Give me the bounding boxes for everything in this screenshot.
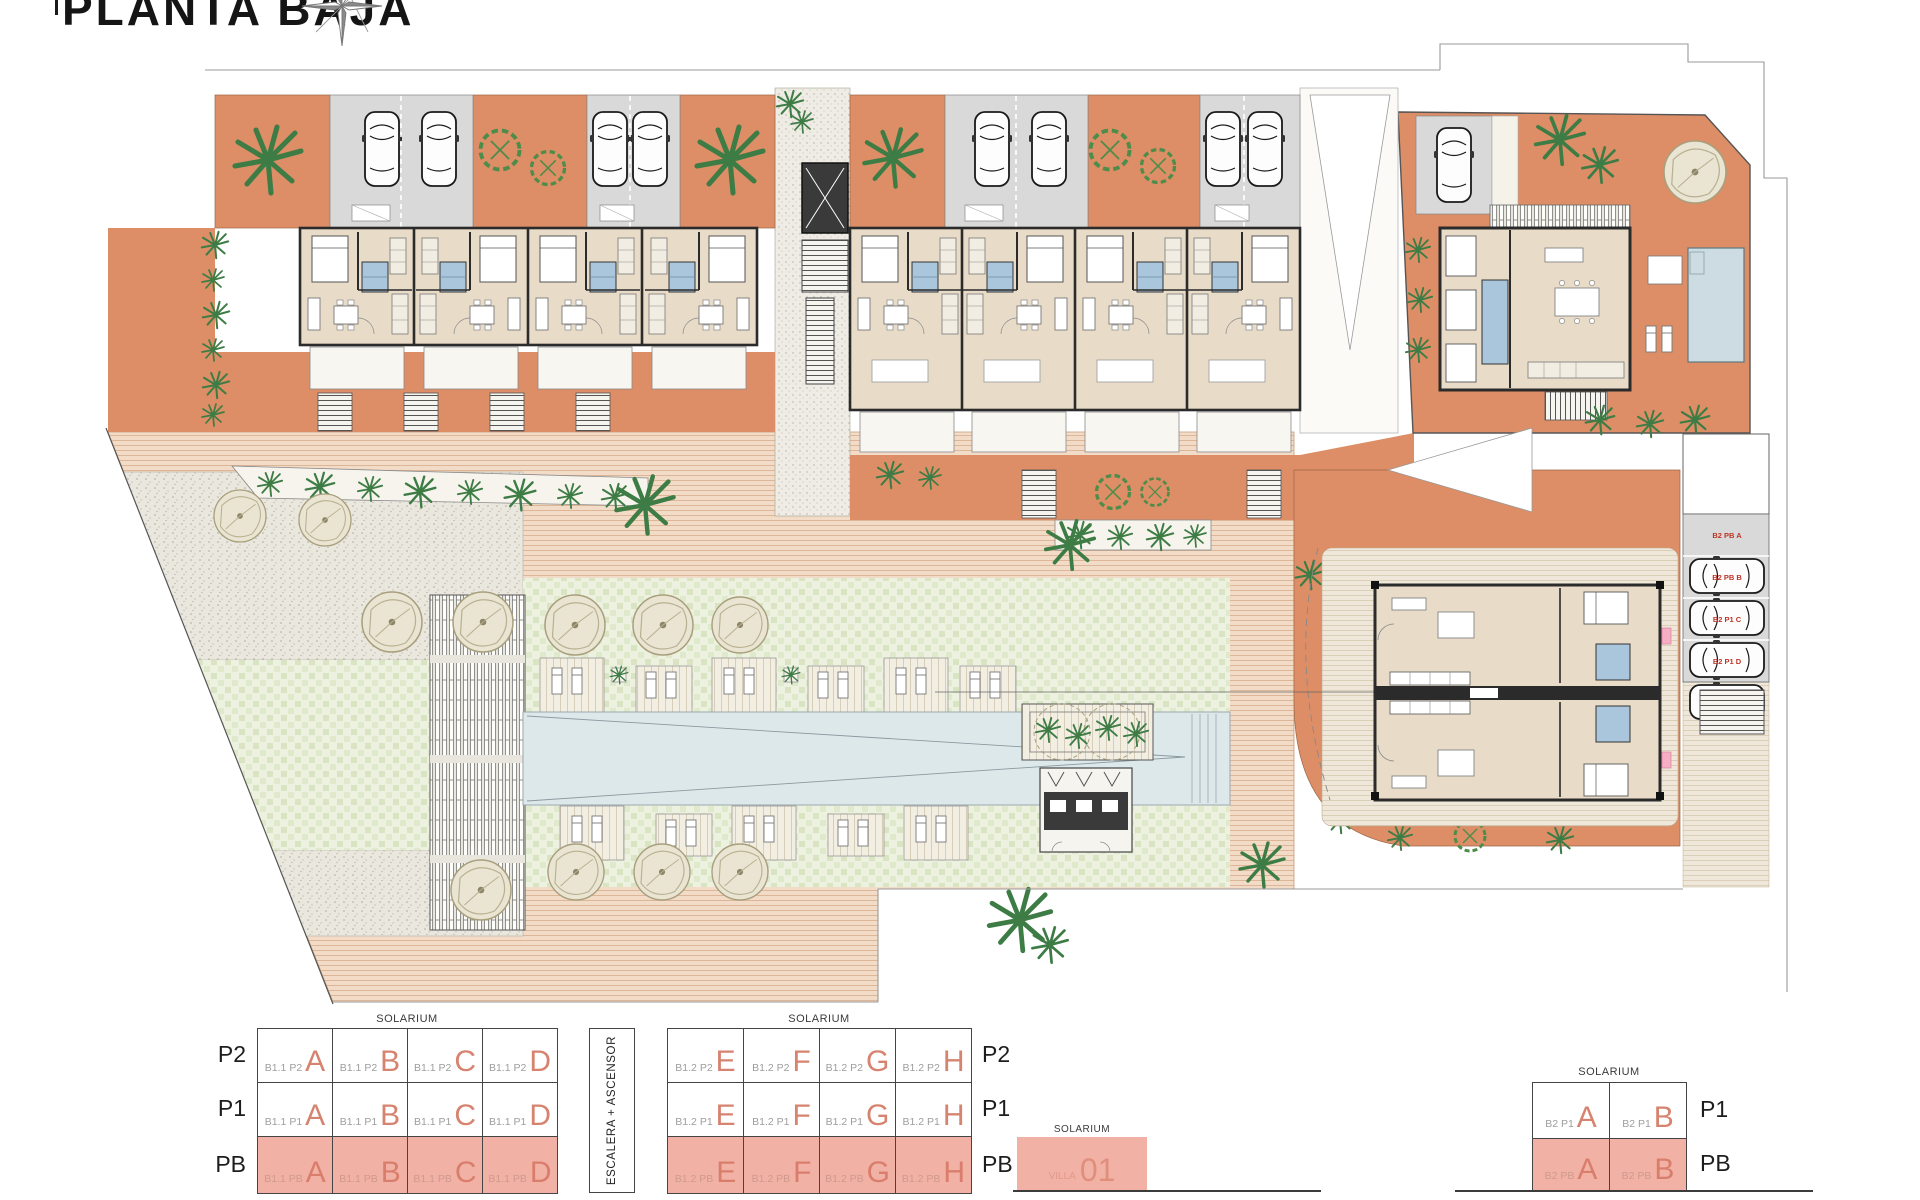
unit-letter: C [454, 1105, 476, 1127]
legend-cell-b2-p1-a: B2 P1A [1533, 1083, 1610, 1139]
unit-code: B1.1 PB [264, 1174, 303, 1185]
ground-line-villa [1013, 1190, 1321, 1192]
unit-code: B1.2 P2 [675, 1063, 712, 1074]
floor-label-right-pb: PB [982, 1151, 1013, 1178]
parking-label-3: B2 P1 C [1713, 615, 1742, 624]
stair-elevator-label: ESCALERA + ASCENSOR [606, 1036, 618, 1185]
legend-cell-b12-p2-e: B1.2 P2E [668, 1029, 744, 1083]
unit-letter: G [867, 1162, 890, 1184]
legend-cell-b12-p2-h: B1.2 P2H [896, 1029, 972, 1083]
floor-label-left-p1: P1 [168, 1095, 246, 1122]
legend-row-b11-pb: B1.1 PBAB1.1 PBBB1.1 PBCB1.1 PBD [258, 1137, 558, 1194]
unit-letter: C [455, 1162, 477, 1184]
unit-code: B1.2 PB [675, 1174, 714, 1185]
unit-code: B1.2 PB [752, 1174, 791, 1185]
floor-label-right-p1: P1 [982, 1095, 1010, 1122]
unit-letter: F [793, 1162, 811, 1184]
villa-code: VILLA [1049, 1172, 1076, 1182]
unit-letter: H [943, 1162, 965, 1184]
solarium-label-b12: SOLARIUM [667, 1013, 971, 1025]
legend-row-b2-pb: B2 PBAB2 PBB [1533, 1139, 1687, 1191]
floor-label-b2-pb: PB [1700, 1150, 1731, 1177]
unit-letter: E [716, 1051, 736, 1073]
unit-code: B1.1 PB [339, 1174, 378, 1185]
villa-number: 01 [1080, 1159, 1116, 1182]
unit-letter: H [943, 1051, 965, 1073]
legend-cell-b12-pb-e: B1.2 PBE [668, 1137, 744, 1194]
floor-label-left-p2: P2 [168, 1041, 246, 1068]
unit-code: B1.1 PB [488, 1174, 527, 1185]
unit-code: B1.1 P2 [265, 1063, 302, 1074]
unit-code: B1.1 P1 [414, 1117, 451, 1128]
legend-table-b2: B2 P1AB2 P1BB2 PBAB2 PBB [1532, 1082, 1687, 1191]
legend-cell-b11-pb-d: B1.1 PBD [483, 1137, 558, 1194]
legend-cell-b11-p1-c: B1.1 P1C [408, 1083, 483, 1137]
unit-letter: B [381, 1162, 401, 1184]
unit-code: B1.2 P1 [675, 1117, 712, 1128]
legend-table-b12: B1.2 P2EB1.2 P2FB1.2 P2GB1.2 P2HB1.2 P1E… [667, 1028, 972, 1194]
unit-code: B1.2 P2 [826, 1063, 863, 1074]
parking-label-4: B2 P1 D [1713, 657, 1742, 666]
legend-cell-b12-pb-h: B1.2 PBH [896, 1137, 972, 1194]
legend-cell-b12-p1-g: B1.2 P1G [820, 1083, 896, 1137]
legend-cell-b12-p1-e: B1.2 P1E [668, 1083, 744, 1137]
legend-row-b11-p1: B1.1 P1AB1.1 P1BB1.1 P1CB1.1 P1D [258, 1083, 558, 1137]
unit-code: B1.1 P1 [265, 1117, 302, 1128]
legend-cell-b11-pb-c: B1.1 PBC [408, 1137, 483, 1194]
legend-cell-b2-p1-b: B2 P1B [1610, 1083, 1687, 1139]
unit-code: B1.2 P1 [902, 1117, 939, 1128]
legend-row-b2-p1: B2 P1AB2 P1B [1533, 1083, 1687, 1139]
solarium-label-b2: SOLARIUM [1532, 1066, 1686, 1078]
unit-letter: D [530, 1162, 552, 1184]
unit-letter: D [529, 1051, 551, 1073]
unit-code: B1.2 PB [902, 1174, 941, 1185]
solarium-label-b11: SOLARIUM [257, 1013, 557, 1025]
legend-cell-b11-pb-b: B1.1 PBB [333, 1137, 408, 1194]
ground-line-b2 [1455, 1190, 1813, 1192]
unit-letter: A [305, 1105, 325, 1127]
legend-cell-b2-pb-b: B2 PBB [1610, 1139, 1687, 1191]
legend-cell-b2-pb-a: B2 PBA [1533, 1139, 1610, 1191]
legend-cell-b12-p2-g: B1.2 P2G [820, 1029, 896, 1083]
floor-label-left-pb: PB [168, 1151, 246, 1178]
unit-code: B1.1 P2 [489, 1063, 526, 1074]
unit-code: B1.2 P1 [752, 1117, 789, 1128]
parking-label-2: B2 PB B [1712, 573, 1742, 582]
legend-cell-b11-p1-d: B1.1 P1D [483, 1083, 558, 1137]
legend-cell-b12-p1-f: B1.2 P1F [744, 1083, 820, 1137]
unit-code: B1.2 P2 [752, 1063, 789, 1074]
legend-cell-b12-pb-f: B1.2 PBF [744, 1137, 820, 1194]
unit-letter: A [1577, 1159, 1597, 1181]
unit-letter: H [943, 1105, 965, 1127]
unit-code: B1.2 PB [825, 1174, 864, 1185]
jacuzzi-planter [1022, 704, 1153, 760]
legend-cell-b12-p2-f: B1.2 P2F [744, 1029, 820, 1083]
unit-letter: C [454, 1051, 476, 1073]
legend-cell-b11-p1-a: B1.1 P1A [258, 1083, 333, 1137]
unit-letter: A [306, 1162, 326, 1184]
legend-row-b12-pb: B1.2 PBEB1.2 PBFB1.2 PBGB1.2 PBH [668, 1137, 972, 1194]
unit-code: B1.1 PB [413, 1174, 452, 1185]
legend-row-b12-p1: B1.2 P1EB1.2 P1FB1.2 P1GB1.2 P1H [668, 1083, 972, 1137]
unit-letter: F [793, 1051, 811, 1073]
unit-letter: E [716, 1105, 736, 1127]
legend-cell-b11-p2-b: B1.1 P2B [333, 1029, 408, 1083]
stair-elevator-legend: ESCALERA + ASCENSOR [589, 1028, 635, 1193]
unit-letter: B [1654, 1159, 1674, 1181]
unit-code: B2 P1 [1622, 1119, 1651, 1130]
unit-code: B2 PB [1545, 1171, 1575, 1182]
floorplan-page: PLANTA BAJA [0, 0, 1920, 1200]
unit-code: B1.1 P1 [340, 1117, 377, 1128]
legend-row-b12-p2: B1.2 P2EB1.2 P2FB1.2 P2GB1.2 P2H [668, 1029, 972, 1083]
unit-letter: D [529, 1105, 551, 1127]
unit-code: B1.1 P2 [340, 1063, 377, 1074]
legend-cell-b11-p2-a: B1.1 P2A [258, 1029, 333, 1083]
unit-code: B2 P1 [1545, 1119, 1574, 1130]
legend-row-b11-p2: B1.1 P2AB1.1 P2BB1.1 P2CB1.1 P2D [258, 1029, 558, 1083]
b2-parking: B2 PB A B2 PB B B2 P1 C B2 P1 D [1683, 434, 1769, 887]
solarium-label-villa: SOLARIUM [1017, 1124, 1147, 1135]
unit-letter: A [1577, 1107, 1597, 1129]
unit-letter: B [380, 1051, 400, 1073]
legend-cell-b11-p1-b: B1.1 P1B [333, 1083, 408, 1137]
legend-cell-b11-p2-c: B1.1 P2C [408, 1029, 483, 1083]
unit-code: B1.1 P2 [414, 1063, 451, 1074]
unit-letter: G [866, 1051, 889, 1073]
unit-code: B2 PB [1622, 1171, 1652, 1182]
legend-villa-block: VILLA 01 [1017, 1137, 1147, 1190]
unit-letter: E [716, 1162, 736, 1184]
unit-letter: A [305, 1051, 325, 1073]
unit-letter: B [380, 1105, 400, 1127]
unit-letter: G [866, 1105, 889, 1127]
unit-code: B1.1 P1 [489, 1117, 526, 1128]
legend-cell-b11-p2-d: B1.1 P2D [483, 1029, 558, 1083]
unit-letter: B [1654, 1107, 1674, 1129]
legend-cell-b12-p1-h: B1.2 P1H [896, 1083, 972, 1137]
unit-letter: F [793, 1105, 811, 1127]
parking-label-1: B2 PB A [1712, 531, 1742, 540]
pool-shower-block [1040, 768, 1132, 852]
floor-label-b2-p1: P1 [1700, 1096, 1728, 1123]
unit-code: B1.2 P2 [902, 1063, 939, 1074]
floor-label-right-p2: P2 [982, 1041, 1010, 1068]
unit-code: B1.2 P1 [826, 1117, 863, 1128]
legend-cell-b12-pb-g: B1.2 PBG [820, 1137, 896, 1194]
legend-table-b11: B1.1 P2AB1.1 P2BB1.1 P2CB1.1 P2DB1.1 P1A… [257, 1028, 558, 1194]
legend-cell-b11-pb-a: B1.1 PBA [258, 1137, 333, 1194]
